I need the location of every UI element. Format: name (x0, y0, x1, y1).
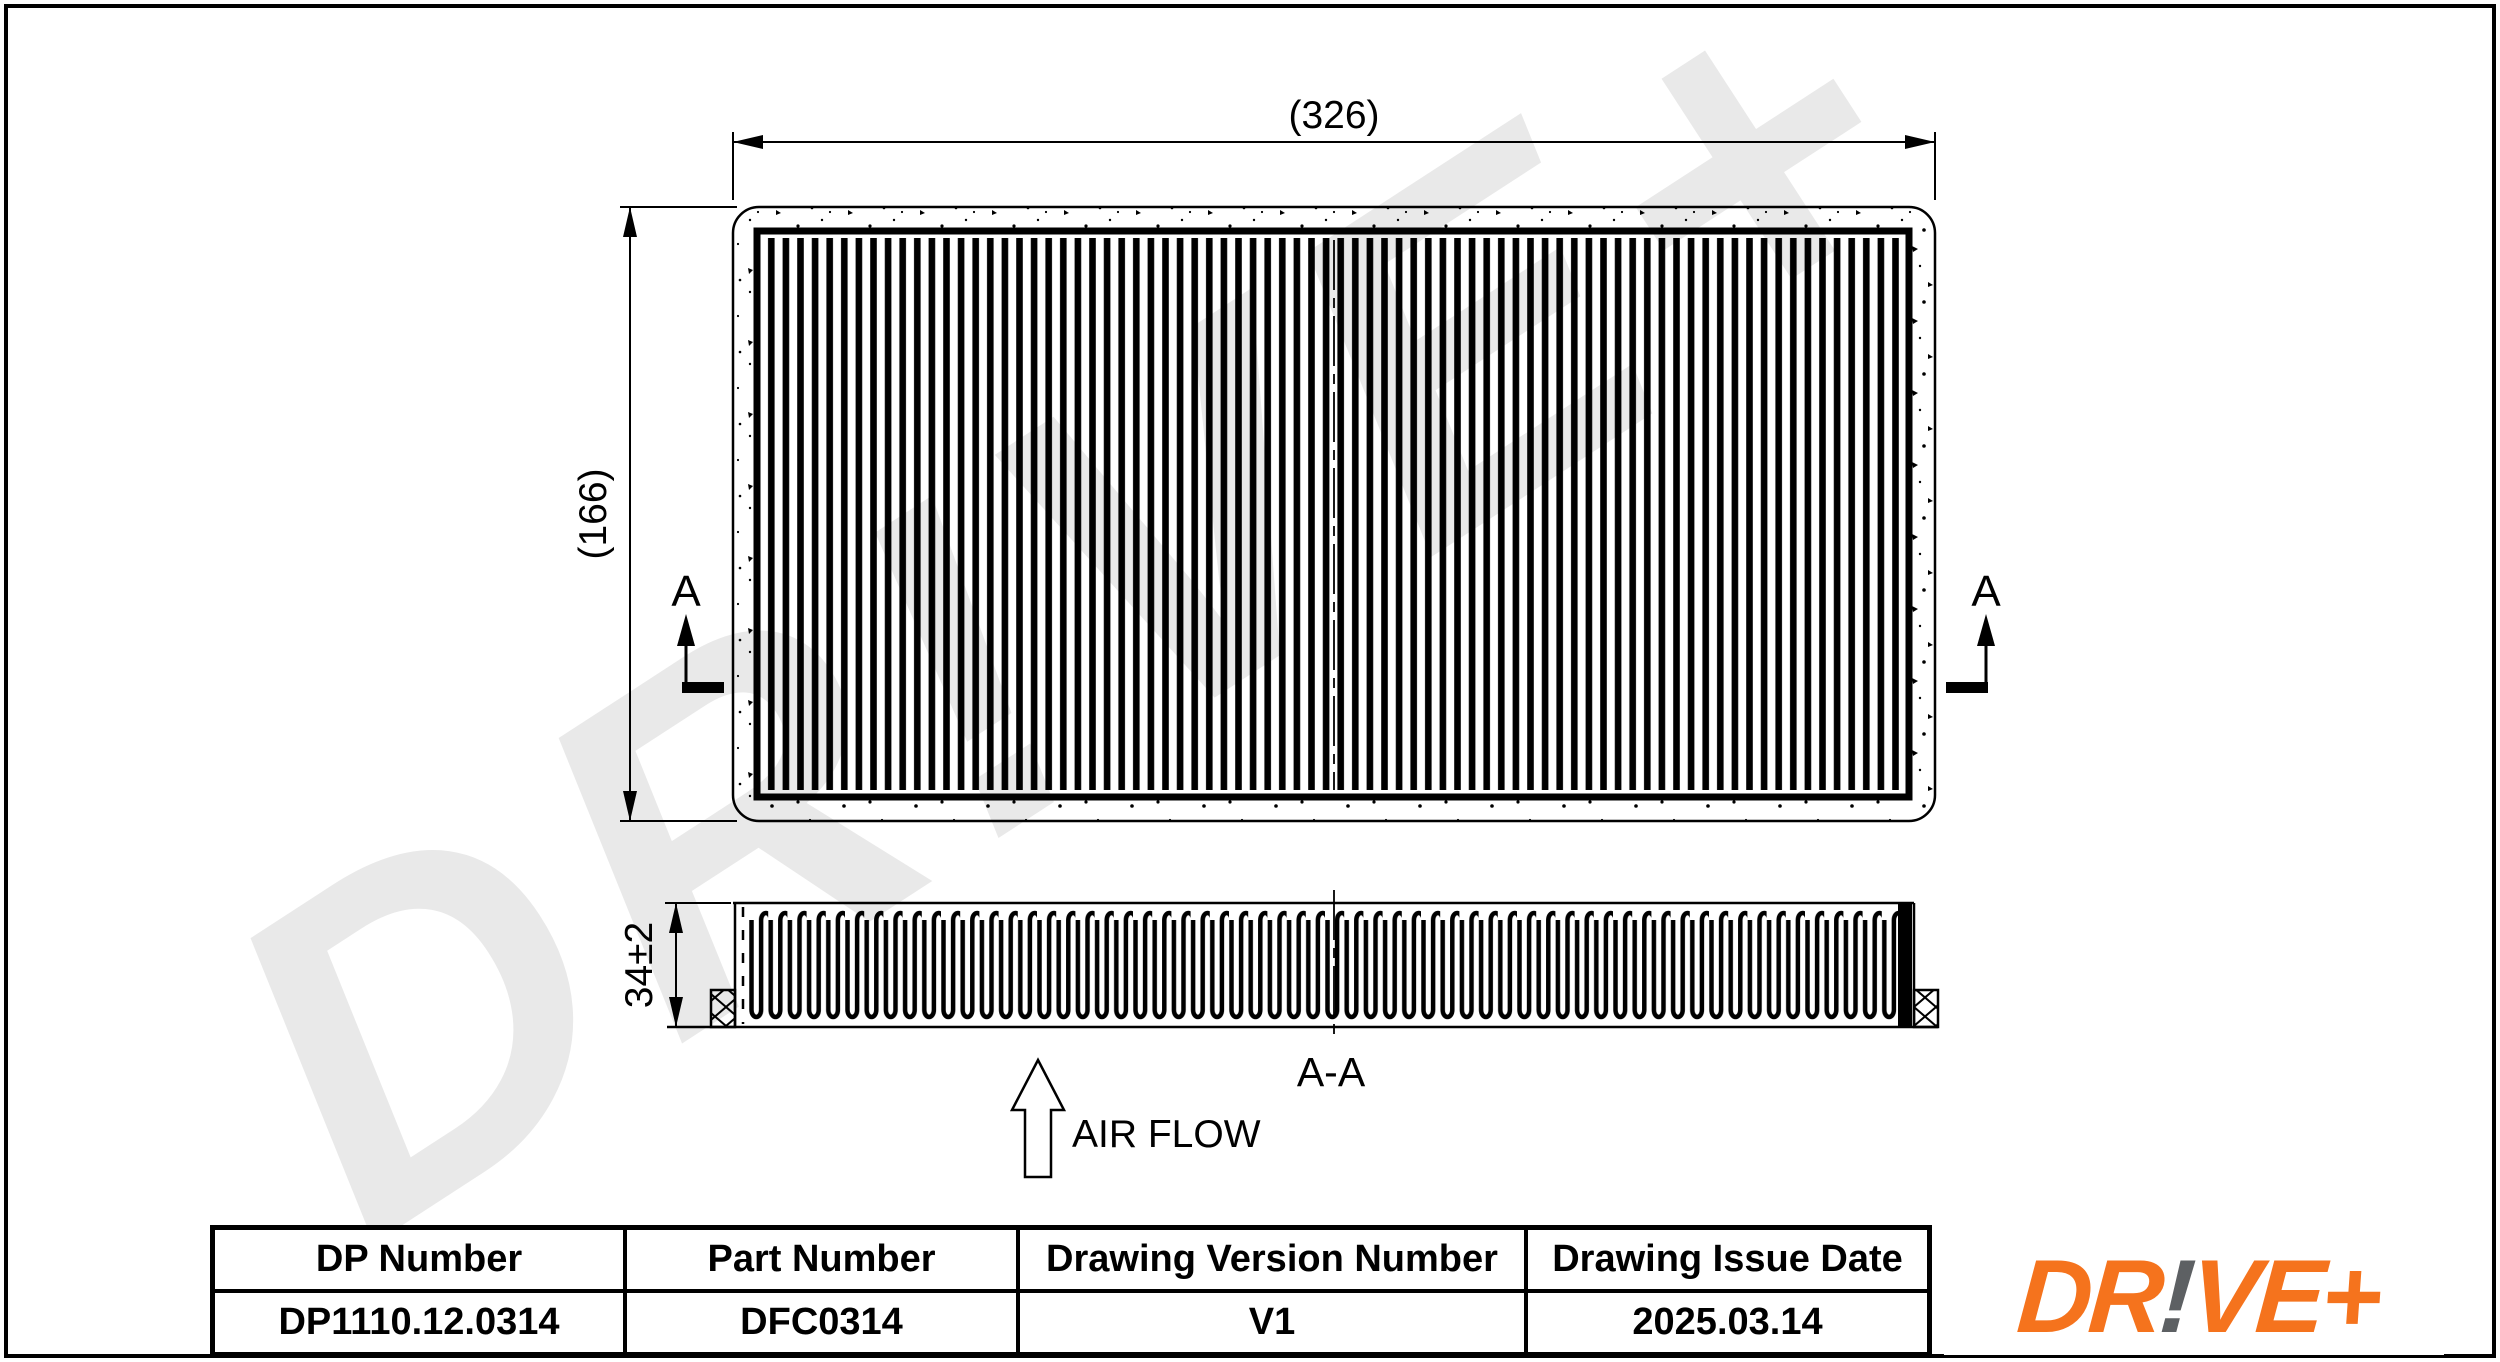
dimension-height: (166) (572, 207, 737, 821)
table-value-part-number: DFC0314 (625, 1291, 1018, 1354)
dim-height-label: (166) (572, 468, 615, 559)
section-marker-left-label: A (671, 567, 701, 616)
section-marker-right-label: A (1971, 567, 2001, 616)
filter-top-view (733, 207, 1935, 821)
section-title: A-A (1297, 1049, 1366, 1095)
table-header-drawing-version: Drawing Version Number (1018, 1228, 1526, 1291)
table-header-part-number: Part Number (625, 1228, 1018, 1291)
table-value-issue-date: 2025.03.14 (1526, 1291, 1929, 1354)
section-end-pad-right (1914, 990, 1938, 1027)
table-header-dp-number: DP Number (213, 1228, 625, 1291)
title-block-table: DP Number Part Number Drawing Version Nu… (210, 1225, 1932, 1357)
logo: DR!VE+ (1944, 1239, 2452, 1355)
logo-dr: DR (2014, 1245, 2163, 1349)
filter-section-view (667, 890, 1938, 1042)
section-end-pad-left (711, 990, 735, 1027)
table-value-drawing-version: V1 (1018, 1291, 1526, 1354)
dimension-width: (326) (733, 94, 1935, 200)
airflow-arrow-icon (1012, 1060, 1064, 1177)
filter-pleats-section (749, 905, 1898, 1025)
dim-width-label: (326) (1288, 94, 1379, 137)
filter-technical-drawing: (326) (166) A A (0, 0, 2500, 1362)
dim-thickness-label: 34±2 (618, 922, 661, 1008)
table-header-issue-date: Drawing Issue Date (1526, 1228, 1929, 1291)
section-marker-right: A (1946, 567, 2001, 693)
drawing-page: DR!VE+ (0, 0, 2500, 1362)
airflow-indicator: AIR FLOW (1012, 1060, 1261, 1177)
section-marker-left: A (671, 567, 724, 693)
airflow-label: AIR FLOW (1072, 1113, 1261, 1156)
logo-veplus: VE+ (2187, 1245, 2382, 1349)
filter-pleats-top (764, 238, 1902, 790)
table-value-dp-number: DP1110.12.0314 (213, 1291, 625, 1354)
